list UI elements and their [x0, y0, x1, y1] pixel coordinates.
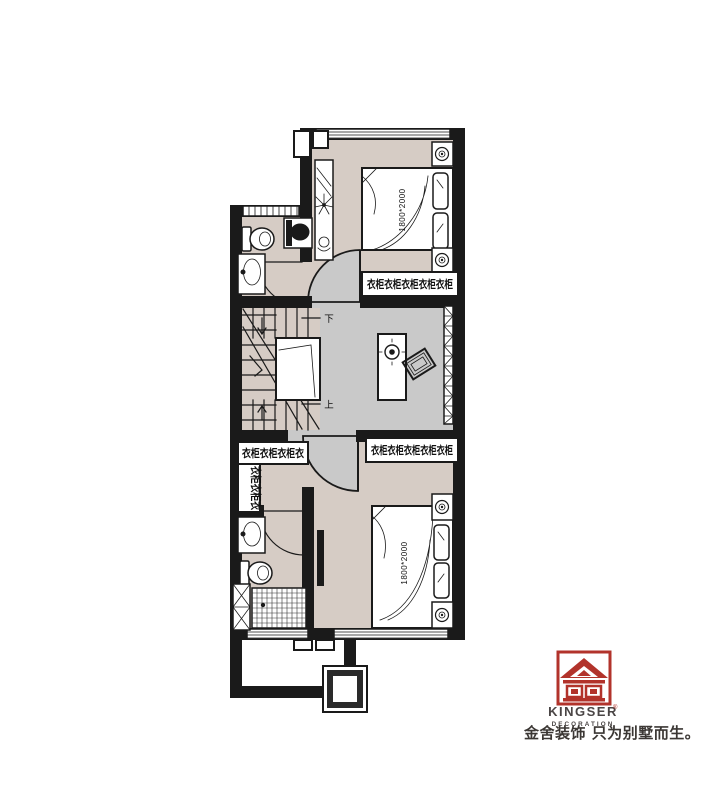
logo-spiral-left-core: [571, 689, 578, 694]
stairs-up-label: 上: [324, 400, 334, 411]
window-bottom-right: [334, 629, 448, 639]
wardrobe-label: 衣柜衣柜衣柜衣柜衣柜: [367, 277, 453, 291]
brand-name: KINGSER: [548, 704, 618, 719]
decor-shelf: [315, 160, 333, 260]
wall-right: [453, 128, 465, 640]
bed-size-label: 1800*2000: [398, 188, 407, 231]
lamp-dot: [441, 614, 443, 616]
wall-bath2-stub: [302, 487, 314, 517]
window-bottom-left: [247, 629, 308, 639]
closet-label: 衣柜衣柜衣柜衣: [242, 446, 305, 460]
shower-drain: [261, 603, 265, 607]
nightstand: [432, 494, 453, 520]
tv-panel: [317, 530, 324, 586]
pillow: [433, 173, 448, 209]
floor-plan-drawing: 下 上 1800*2000: [0, 0, 704, 800]
column-inner: [330, 673, 360, 705]
chimney-tab-left: [294, 131, 310, 157]
closet-label-vertical: 衣柜衣柜衣: [249, 466, 263, 511]
registered-mark: ®: [613, 704, 618, 711]
brand-tagline: 金舍装饰 只为别墅而生。: [523, 724, 700, 742]
threshold-tab-left: [294, 640, 312, 650]
floor-plan-page: 下 上 1800*2000: [0, 0, 704, 800]
lamp-dot: [441, 259, 443, 261]
vanity-bowl: [291, 224, 310, 241]
stairs-down-label: 下: [324, 314, 334, 325]
washbasin-tap: [241, 532, 246, 537]
wardrobe-label: 衣柜衣柜衣柜衣柜衣柜: [371, 443, 453, 457]
nightstand: [432, 602, 453, 628]
bed-size-label: 1800*2000: [400, 541, 409, 584]
nightstand: [432, 142, 453, 166]
washbasin-tap: [241, 270, 246, 275]
logo-spiral-right-core: [590, 689, 597, 694]
wall-hall-bottom-left: [230, 430, 288, 442]
threshold-tab-right: [316, 640, 334, 650]
chimney-tab-right: [313, 131, 328, 148]
lamp-dot: [441, 153, 443, 155]
brand-logo: KINGSER ® DECORATION 金舍装饰 只为别墅而生。: [523, 652, 700, 742]
terrace-column: [323, 666, 367, 712]
terrace-wall-bottom: [230, 686, 327, 698]
pillow: [434, 525, 449, 560]
desk: [378, 334, 406, 400]
pillow: [434, 563, 449, 598]
pillow: [433, 213, 448, 249]
bottom-bedroom: 1800*2000: [372, 494, 453, 628]
logo-bar-bottom: [563, 698, 605, 702]
nightstand: [432, 248, 453, 272]
logo-bar: [563, 680, 605, 684]
window-top: [316, 129, 450, 139]
lamp-dot: [441, 506, 443, 508]
